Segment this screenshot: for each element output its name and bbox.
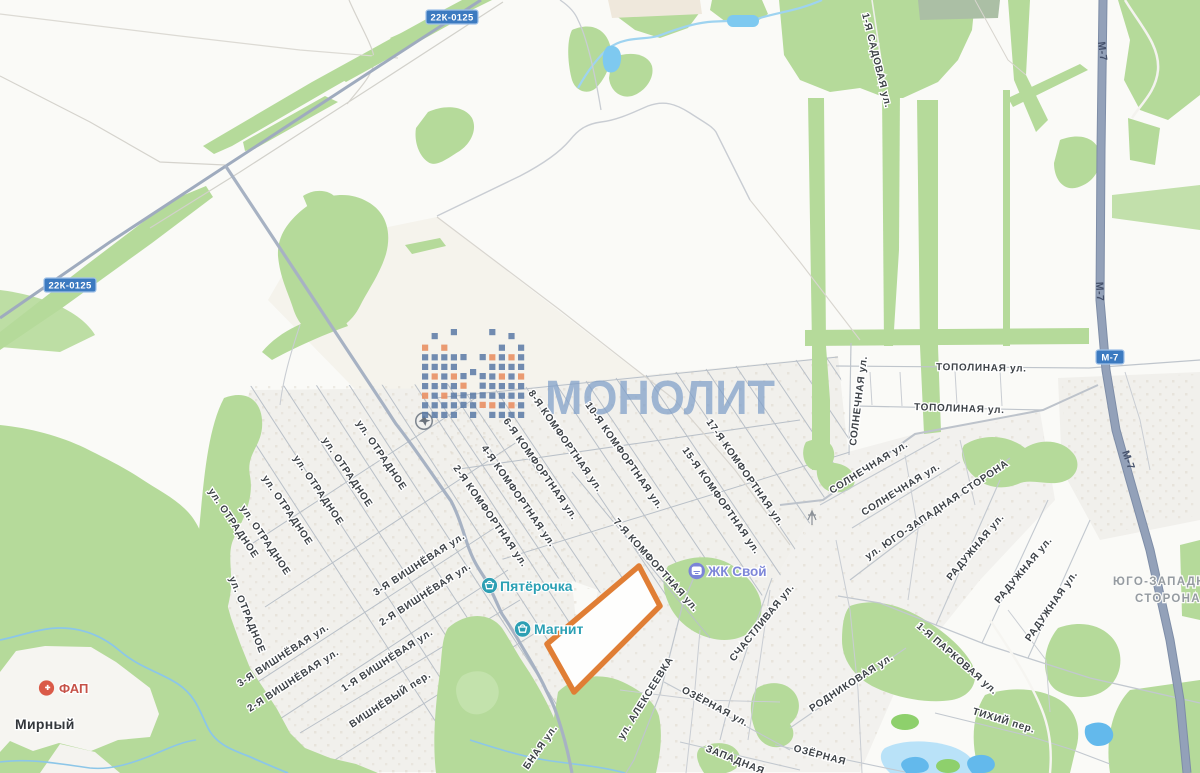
svg-text:ЖК Свой: ЖК Свой [707,564,767,579]
svg-text:22К-0125: 22К-0125 [430,13,473,24]
svg-text:СТОРОНА: СТОРОНА [1135,593,1200,605]
svg-text:ЮГО-ЗАПАДН: ЮГО-ЗАПАДН [1113,576,1200,588]
svg-text:Магнит: Магнит [534,621,584,637]
svg-text:22К-0125: 22К-0125 [48,281,91,292]
svg-text:ФАП: ФАП [59,681,88,696]
svg-text:М-7: М-7 [1101,353,1118,364]
svg-text:Пятёрочка: Пятёрочка [500,578,573,594]
svg-text:МОНОЛИТ: МОНОЛИТ [545,372,775,425]
svg-text:ТОПОЛИНАЯ ул.: ТОПОЛИНАЯ ул. [936,362,1027,375]
svg-text:М-7: М-7 [1093,282,1106,302]
svg-text:Мирный: Мирный [15,716,75,732]
svg-text:М-7: М-7 [1095,41,1109,62]
